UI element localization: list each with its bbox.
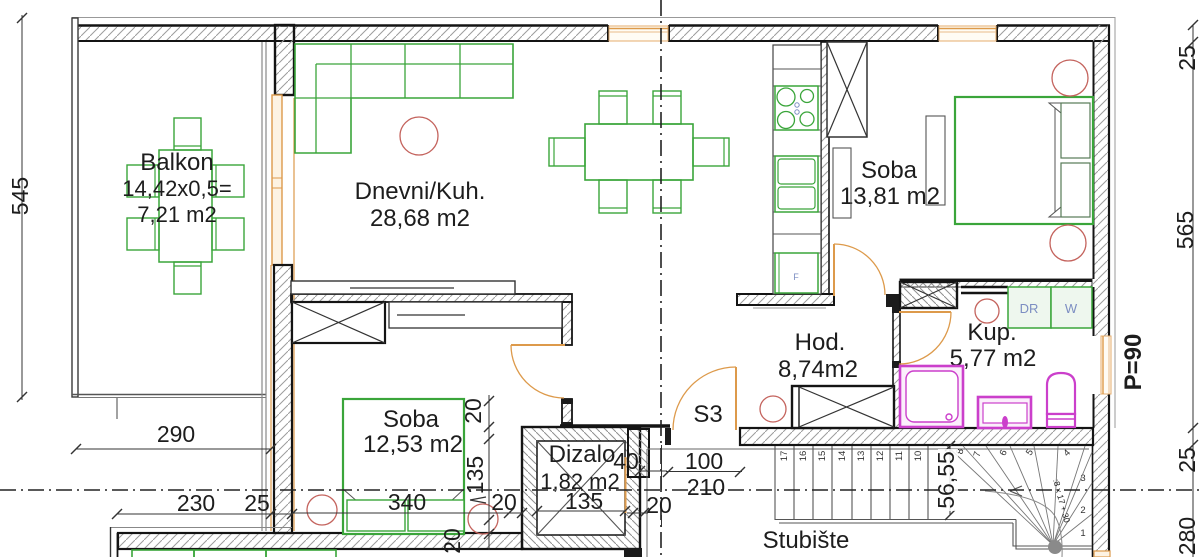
- svg-text:56,55: 56,55: [933, 451, 959, 509]
- svg-text:15: 15: [817, 451, 828, 462]
- svg-text:230: 230: [177, 490, 215, 516]
- svg-text:Dizalo: Dizalo: [549, 441, 616, 468]
- svg-text:11: 11: [894, 451, 905, 461]
- svg-text:28,68 m2: 28,68 m2: [370, 205, 470, 232]
- svg-text:25: 25: [1174, 45, 1200, 71]
- svg-text:6: 6: [998, 448, 1010, 457]
- svg-text:20: 20: [646, 492, 672, 518]
- svg-text:25: 25: [1174, 447, 1200, 473]
- svg-text:Soba: Soba: [861, 157, 918, 184]
- svg-text:2: 2: [1080, 505, 1085, 516]
- svg-text:565: 565: [1172, 211, 1198, 249]
- svg-text:Balkon: Balkon: [140, 149, 213, 176]
- svg-text:545: 545: [7, 177, 33, 215]
- svg-text:16: 16: [798, 451, 809, 462]
- svg-text:12,53 m2: 12,53 m2: [363, 431, 463, 458]
- svg-text:280: 280: [1174, 517, 1200, 555]
- svg-text:12: 12: [875, 451, 886, 462]
- svg-text:40: 40: [613, 448, 639, 474]
- svg-text:340: 340: [388, 489, 426, 515]
- svg-text:100: 100: [685, 448, 723, 474]
- svg-text:S3: S3: [693, 401, 722, 428]
- svg-text:20: 20: [439, 528, 465, 554]
- svg-text:8,74m2: 8,74m2: [778, 356, 858, 383]
- svg-text:Stubište: Stubište: [763, 527, 850, 554]
- svg-text:1: 1: [1080, 528, 1085, 539]
- svg-text:17: 17: [779, 451, 790, 462]
- svg-text:14,42x0,5=: 14,42x0,5=: [122, 176, 231, 201]
- svg-text:20: 20: [460, 398, 486, 424]
- svg-text:13: 13: [856, 451, 867, 462]
- svg-text:13,81 m2: 13,81 m2: [840, 183, 940, 210]
- svg-text:210: 210: [687, 474, 725, 500]
- svg-text:Dnevni/Kuh.: Dnevni/Kuh.: [355, 178, 486, 205]
- svg-text:14: 14: [837, 451, 848, 462]
- svg-text:W: W: [1065, 301, 1078, 316]
- svg-text:F: F: [793, 272, 799, 282]
- svg-text:DR: DR: [1020, 301, 1039, 316]
- svg-text:25: 25: [244, 490, 270, 516]
- svg-text:Hod.: Hod.: [795, 329, 846, 356]
- svg-text:20: 20: [491, 489, 517, 515]
- svg-text:P=90: P=90: [1120, 334, 1147, 391]
- svg-text:290: 290: [157, 421, 195, 447]
- svg-text:10: 10: [913, 451, 924, 462]
- svg-text:135: 135: [462, 456, 488, 494]
- svg-text:135: 135: [565, 488, 603, 514]
- svg-text:Soba: Soba: [383, 406, 440, 433]
- svg-text:7,21 m2: 7,21 m2: [137, 202, 217, 227]
